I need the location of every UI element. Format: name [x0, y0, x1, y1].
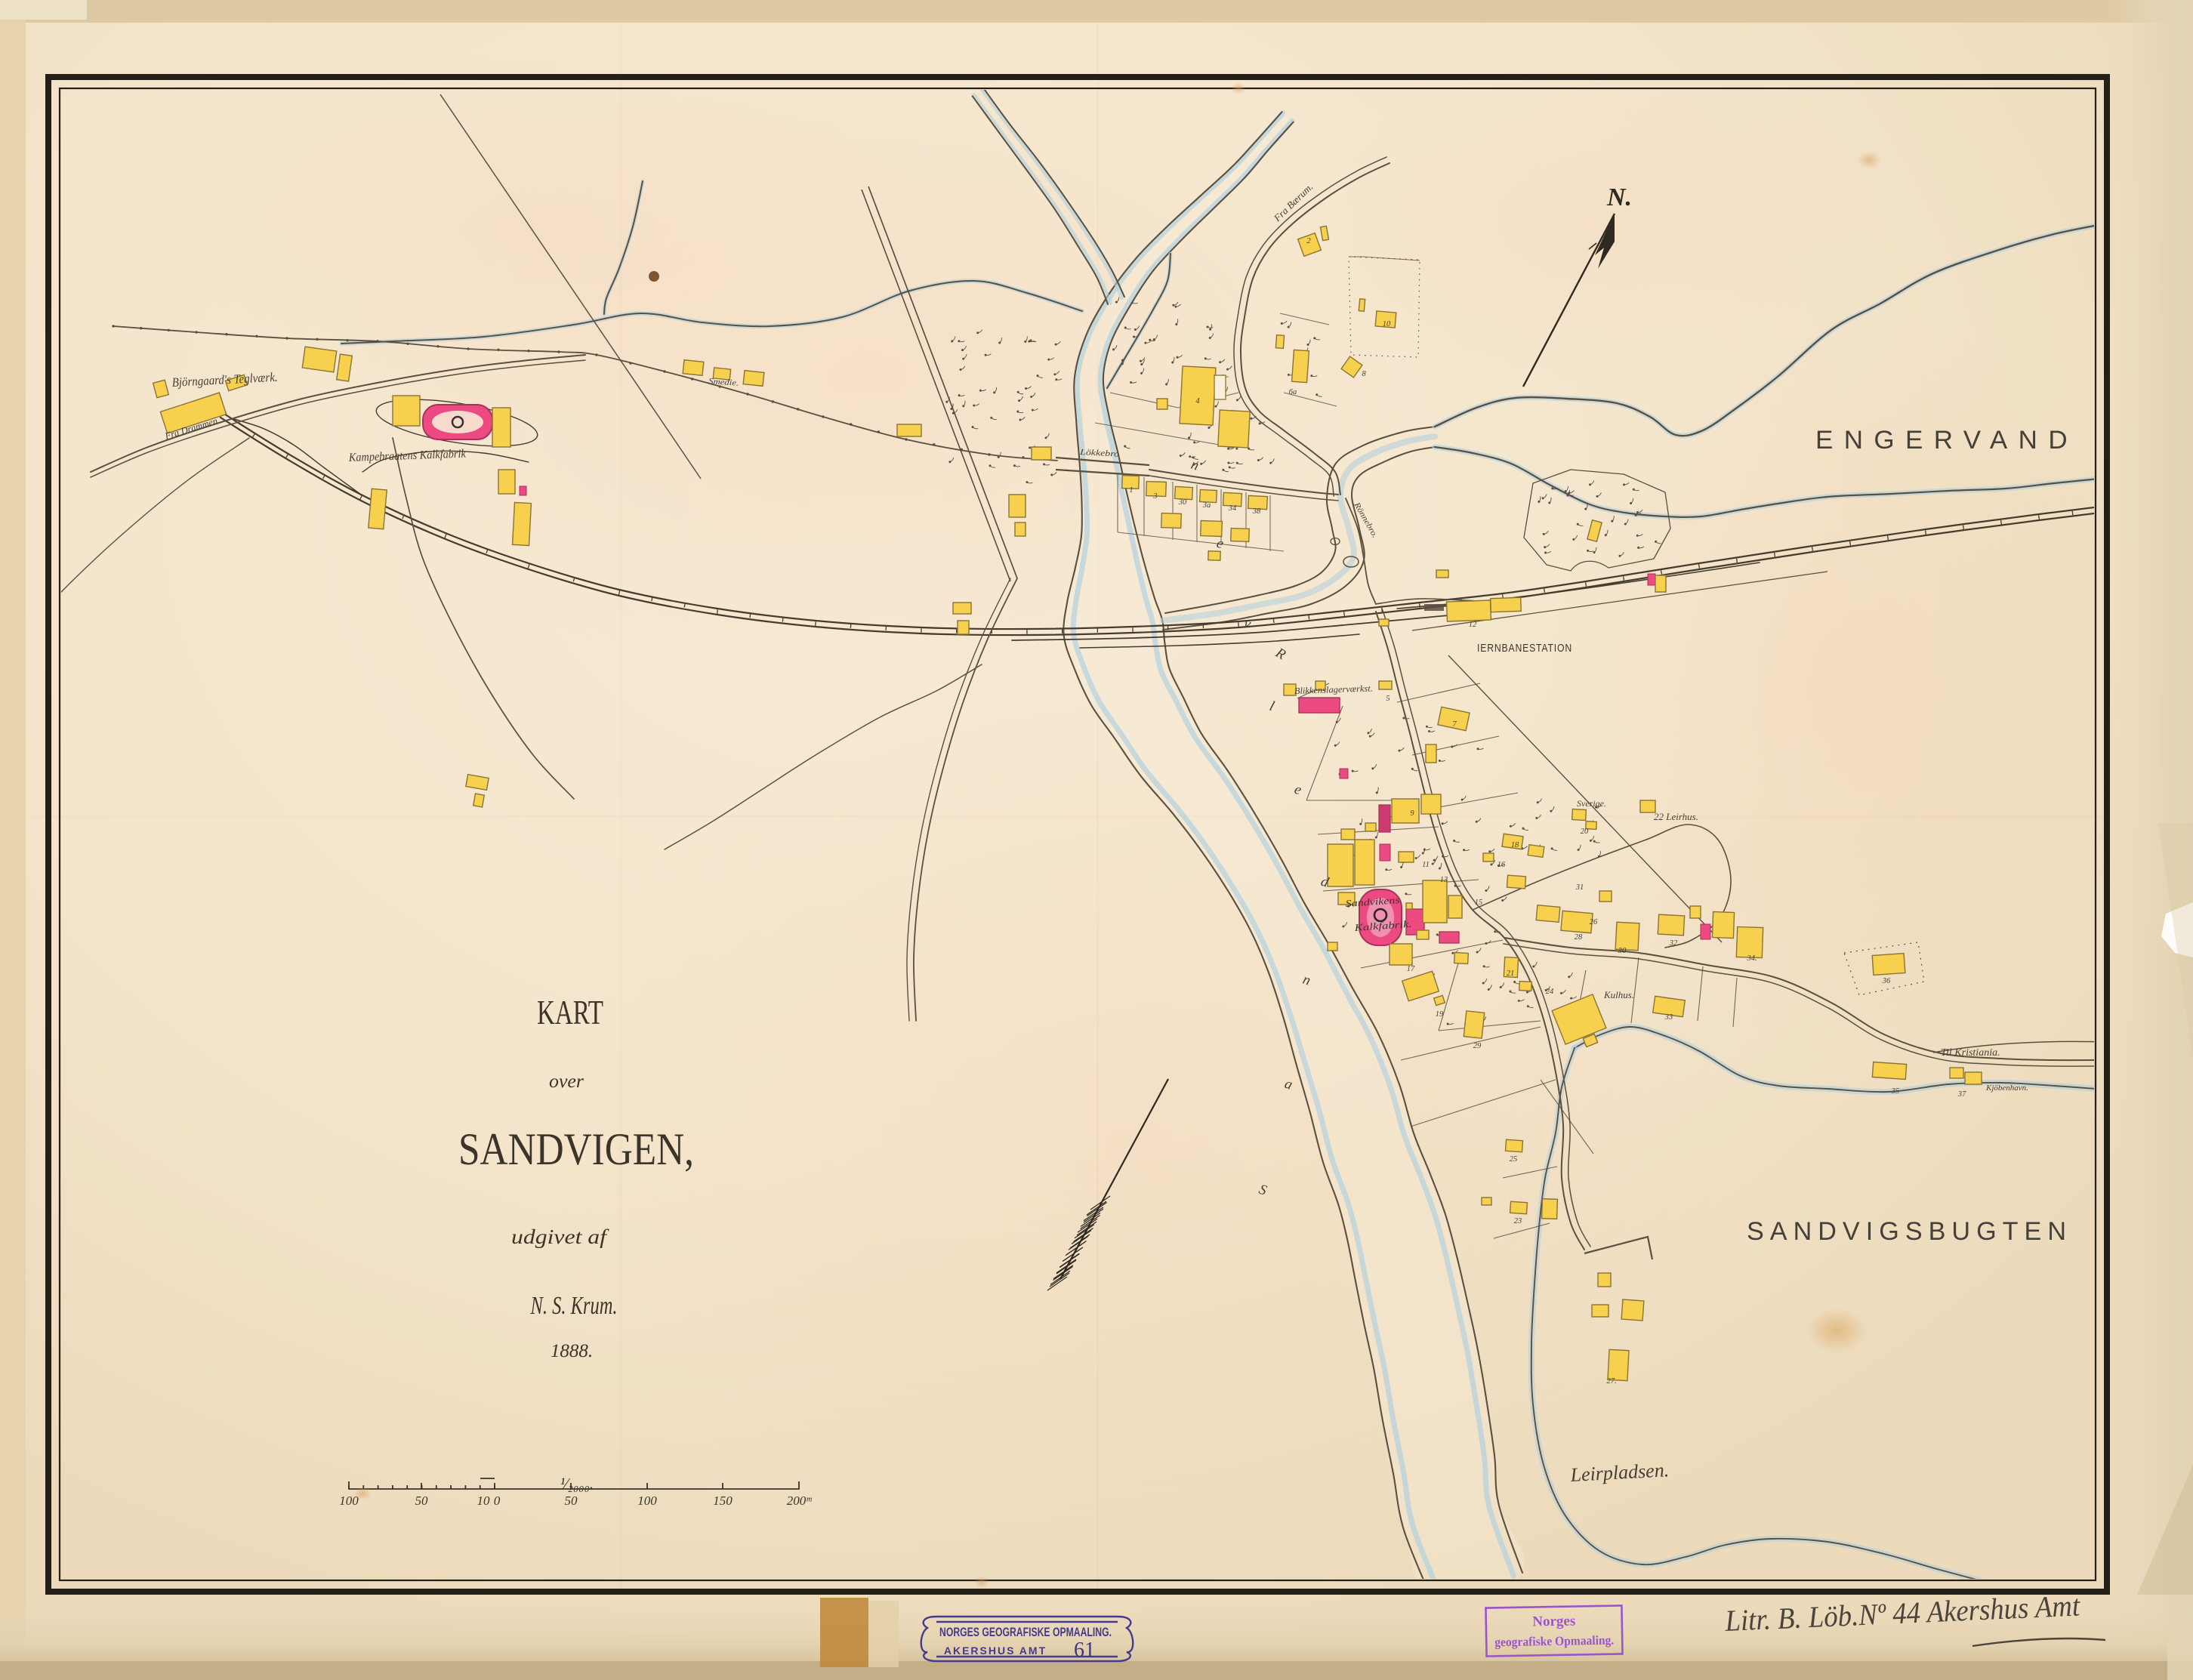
- svg-text:30: 30: [1178, 498, 1187, 507]
- svg-text:Sverige.: Sverige.: [1577, 798, 1606, 809]
- svg-text:12: 12: [1469, 621, 1477, 629]
- svg-text:5: 5: [1386, 695, 1390, 703]
- svg-text:ENGERVAND: ENGERVAND: [1815, 426, 2078, 455]
- svg-text:36: 36: [1882, 977, 1891, 985]
- svg-text:Til Kristiania.: Til Kristiania.: [1941, 1047, 2000, 1059]
- svg-text:NORGES GEOGRAFISKE OPMAALING.: NORGES GEOGRAFISKE OPMAALING.: [939, 1625, 1112, 1639]
- svg-text:19: 19: [1436, 1010, 1444, 1019]
- svg-text:geografiske Opmaaling.: geografiske Opmaaling.: [1494, 1633, 1614, 1650]
- svg-text:3a: 3a: [1202, 501, 1211, 510]
- svg-text:28: 28: [1575, 933, 1583, 942]
- svg-text:34.: 34.: [1746, 954, 1757, 963]
- svg-text:10: 10: [477, 1494, 491, 1508]
- svg-text:50: 50: [415, 1494, 429, 1508]
- svg-text:20: 20: [1581, 828, 1589, 836]
- svg-text:38: 38: [1252, 507, 1261, 516]
- svg-text:10: 10: [1383, 320, 1391, 328]
- svg-text:8: 8: [1362, 370, 1366, 378]
- svg-text:N. S. Krum.: N. S. Krum.: [530, 1292, 618, 1320]
- svg-text:27.: 27.: [1606, 1377, 1616, 1386]
- svg-text:13: 13: [1440, 876, 1448, 884]
- svg-text:Kulhus.: Kulhus.: [1603, 989, 1634, 1000]
- svg-text:33: 33: [1664, 1013, 1673, 1022]
- svg-text:21: 21: [1507, 969, 1515, 978]
- svg-text:30: 30: [1618, 947, 1627, 955]
- svg-text:37: 37: [1957, 1090, 1966, 1099]
- svg-text:16: 16: [1497, 861, 1506, 869]
- svg-text:150: 150: [713, 1494, 733, 1508]
- svg-text:35: 35: [1891, 1087, 1900, 1096]
- svg-text:4: 4: [1195, 397, 1200, 405]
- svg-text:KART: KART: [537, 993, 603, 1031]
- svg-text:Kjöbenhavn.: Kjöbenhavn.: [1985, 1084, 2028, 1093]
- svg-text:24: 24: [1546, 988, 1554, 996]
- svg-text:9: 9: [1410, 809, 1414, 818]
- svg-text:26: 26: [1590, 918, 1598, 926]
- svg-text:50: 50: [565, 1494, 578, 1508]
- svg-text:AKERSHUS AMT: AKERSHUS AMT: [944, 1645, 1047, 1657]
- svg-text:Norges: Norges: [1532, 1614, 1575, 1630]
- svg-text:17: 17: [1407, 965, 1415, 973]
- svg-text:3: 3: [1152, 492, 1157, 501]
- svg-text:IERNBANESTATION: IERNBANESTATION: [1477, 642, 1572, 655]
- svg-text:SANDVIGSBUGTEN: SANDVIGSBUGTEN: [1747, 1217, 2072, 1246]
- svg-text:18: 18: [1511, 841, 1519, 849]
- svg-text:100: 100: [637, 1494, 657, 1508]
- svg-text:23: 23: [1514, 1217, 1522, 1225]
- svg-text:udgivet af: udgivet af: [511, 1225, 609, 1248]
- svg-text:32: 32: [1669, 939, 1678, 948]
- svg-text:7: 7: [1452, 720, 1457, 729]
- svg-text:29: 29: [1473, 1042, 1482, 1050]
- svg-text:34: 34: [1228, 504, 1237, 513]
- svg-text:SANDVIGEN,: SANDVIGEN,: [458, 1124, 694, 1174]
- svg-text:2: 2: [1306, 237, 1311, 245]
- svg-text:200ᵐ: 200ᵐ: [787, 1494, 813, 1508]
- svg-text:over: over: [549, 1071, 584, 1092]
- svg-text:22 Leirhus.: 22 Leirhus.: [1654, 811, 1698, 822]
- svg-text:0: 0: [494, 1494, 501, 1508]
- svg-text:¹⁄₂₀₀₀.: ¹⁄₂₀₀₀.: [560, 1475, 594, 1493]
- svg-text:11: 11: [1422, 861, 1430, 869]
- svg-text:6a: 6a: [1289, 388, 1297, 396]
- svg-text:25: 25: [1510, 1155, 1518, 1164]
- svg-text:N.: N.: [1606, 183, 1632, 211]
- svg-text:31: 31: [1575, 883, 1584, 892]
- svg-text:61: 61: [1074, 1638, 1095, 1662]
- svg-text:1: 1: [1129, 486, 1133, 495]
- svg-text:15: 15: [1475, 899, 1483, 907]
- svg-text:1888.: 1888.: [551, 1341, 593, 1361]
